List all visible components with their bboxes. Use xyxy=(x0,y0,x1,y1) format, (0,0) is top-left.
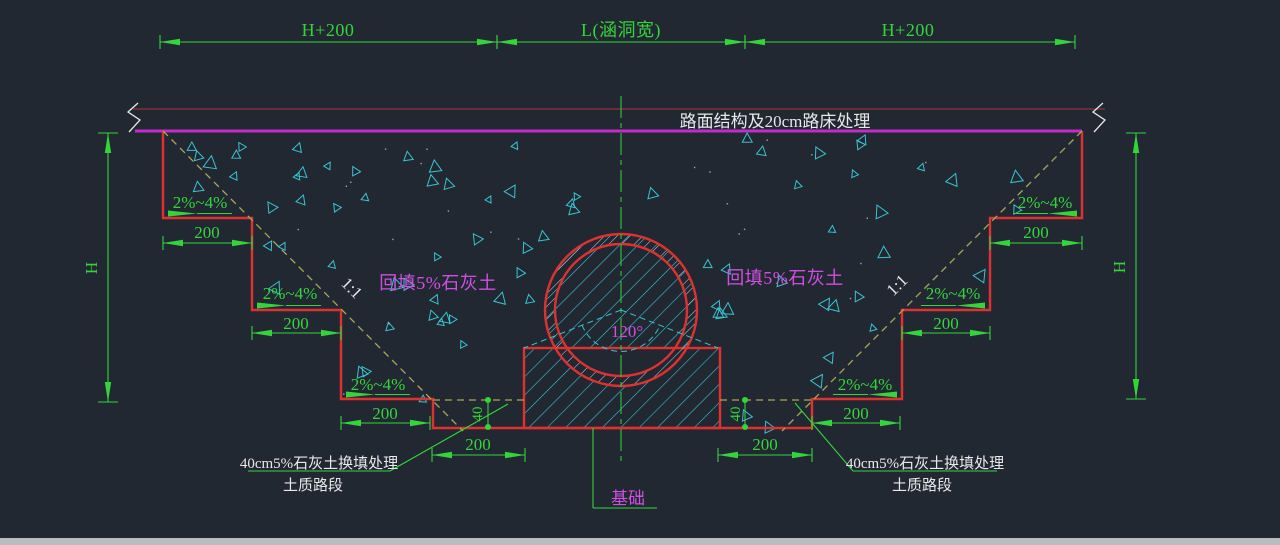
speck xyxy=(426,149,427,150)
dimension-arrow xyxy=(410,420,430,426)
dim-200-bottom-left: 200 xyxy=(465,435,491,454)
hatch-triangle-icon xyxy=(645,186,658,199)
hatch-triangle-icon xyxy=(819,295,835,311)
hatch-triangle-icon xyxy=(757,145,768,155)
speck xyxy=(850,298,851,299)
hatch-triangle-icon xyxy=(192,149,204,160)
angle-label: 120° xyxy=(611,322,643,341)
hatch-triangle-icon xyxy=(1009,169,1023,182)
hatch-triangle-icon xyxy=(973,266,990,283)
hatch-triangle-icon xyxy=(330,201,341,212)
dimension-arrow xyxy=(718,452,738,458)
hatch-triangle-icon xyxy=(361,193,370,201)
dim-200-right-1: 200 xyxy=(1023,223,1049,242)
dim-label-h-right: H xyxy=(1110,261,1129,273)
speck xyxy=(709,171,710,172)
dimension-arrow xyxy=(497,39,517,45)
dim-label-h200-right: H+200 xyxy=(882,20,935,40)
speck xyxy=(420,163,421,164)
hatch-triangle-icon xyxy=(742,133,752,142)
dimension-arrow xyxy=(105,133,111,153)
replace-note-left-line2: 土质路段 xyxy=(283,477,343,494)
hatch-triangle-icon xyxy=(187,142,196,150)
hatch-triangle-icon xyxy=(425,173,438,186)
hatch-triangle-icon xyxy=(458,339,467,348)
dimension-arrow xyxy=(160,39,180,45)
hatch-triangle-icon xyxy=(504,182,520,198)
hatch-triangle-icon xyxy=(828,225,836,232)
hatch-triangle-icon xyxy=(519,240,533,253)
slope-pct-left-1: 2%~4% xyxy=(173,193,228,212)
slope-arrow-icon xyxy=(257,303,286,309)
slope-pct-left-3: 2%~4% xyxy=(351,375,406,394)
hatch-triangle-icon xyxy=(793,180,802,189)
speck xyxy=(867,218,868,219)
break-mark-right-icon xyxy=(1093,103,1105,132)
dim-40-label-left: 40 xyxy=(470,407,486,422)
dimension-arrow xyxy=(745,39,765,45)
dim-label-h-left: H xyxy=(82,262,101,274)
speck xyxy=(925,162,926,163)
dimension-arrow xyxy=(505,452,525,458)
hatch-triangle-icon xyxy=(230,170,240,180)
foundation-label: 基础 xyxy=(611,489,645,508)
dimension-arrow xyxy=(341,420,361,426)
dimension-arrow xyxy=(812,420,832,426)
dimension-arrow xyxy=(792,452,812,458)
hatch-triangle-icon xyxy=(328,260,337,268)
speck xyxy=(388,323,389,324)
speck xyxy=(346,186,347,187)
dimension-arrow xyxy=(163,240,183,246)
hatch-triangle-icon xyxy=(868,323,877,331)
replace-note-right-line2: 土质路段 xyxy=(892,477,952,494)
dimension-arrow xyxy=(477,39,497,45)
backfill-label-right: 回填5%石灰土 xyxy=(726,268,844,288)
dim-200-bottom-right: 200 xyxy=(752,435,778,454)
dim-40-label-right: 40 xyxy=(728,407,744,422)
hatch-triangle-icon xyxy=(511,140,520,149)
hatch-triangle-icon xyxy=(384,321,394,331)
speck xyxy=(298,229,299,230)
speck xyxy=(767,139,768,140)
hatch-triangle-icon xyxy=(263,199,278,213)
slope-ratio-left: 1:1 xyxy=(337,274,366,303)
dimension-arrow xyxy=(1133,379,1139,399)
speck xyxy=(727,203,728,204)
dim-200-right-3: 200 xyxy=(843,404,869,423)
dimension-arrow xyxy=(321,330,341,336)
hatch-triangle-icon xyxy=(851,289,864,302)
hatch-triangle-icon xyxy=(871,202,888,219)
hatch-triangle-icon xyxy=(324,160,334,169)
dimension-arrow xyxy=(990,240,1010,246)
dimension-arrow xyxy=(1062,240,1082,246)
slope-ratio-right: 1:1 xyxy=(883,271,912,300)
dimension-arrow xyxy=(252,330,272,336)
speck xyxy=(518,238,519,239)
hatch-triangle-icon xyxy=(917,162,926,170)
hatch-triangle-icon xyxy=(430,293,442,304)
speck xyxy=(350,182,351,183)
dimension-arrow xyxy=(725,39,745,45)
hatch-triangle-icon xyxy=(703,259,712,267)
slope-arrow-icon xyxy=(956,303,985,309)
hatch-triangle-icon xyxy=(441,177,454,190)
hatch-triangle-icon xyxy=(293,171,302,180)
speck xyxy=(385,148,386,149)
road-structure-note: 路面结构及20cm路床处理 xyxy=(680,112,871,131)
hatch-triangle-icon xyxy=(296,166,308,178)
speck xyxy=(860,263,861,264)
hatch-triangle-icon xyxy=(513,265,526,277)
hatch-triangle-icon xyxy=(192,181,204,192)
hatch-triangle-icon xyxy=(203,155,218,169)
slope-pct-left-2: 2%~4% xyxy=(263,284,318,303)
culvert-cross-section-drawing: H+200 L(涵洞宽) H+200 路面结构及20cm路床处理 H H 2%~… xyxy=(0,0,1280,545)
replace-note-right-line1: 40cm5%石灰土换填处理 xyxy=(846,455,1004,472)
dimension-arrow xyxy=(880,420,900,426)
hatch-triangle-icon xyxy=(428,159,442,172)
break-mark-left-icon xyxy=(128,103,140,132)
dim-200-left-2: 200 xyxy=(283,314,309,333)
hatch-triangle-icon xyxy=(296,193,308,204)
speck xyxy=(448,210,449,211)
hatch-triangle-icon xyxy=(811,371,828,388)
dimension-arrow xyxy=(105,382,111,402)
speck xyxy=(811,154,812,155)
hatch-triangle-icon xyxy=(878,246,891,258)
hatch-triangle-icon xyxy=(761,419,776,433)
dimension-arrow xyxy=(1133,133,1139,153)
dimension-arrow xyxy=(232,240,252,246)
hatch-triangle-icon xyxy=(811,144,826,159)
hatch-triangle-icon xyxy=(849,169,858,178)
hatch-triangle-icon xyxy=(823,349,837,363)
hatch-triangle-icon xyxy=(828,298,842,311)
hatch-triangle-icon xyxy=(426,309,438,321)
hatch-triangle-icon xyxy=(431,251,441,261)
hatch-triangle-icon xyxy=(469,231,483,245)
hatch-triangle-icon xyxy=(537,230,549,241)
dim-label-culvert-width: L(涵洞宽) xyxy=(581,20,661,41)
dim-40-left xyxy=(486,398,491,430)
speck xyxy=(490,231,491,232)
replace-note-left-line1: 40cm5%石灰土换填处理 xyxy=(240,455,398,472)
slope-pct-right-2: 2%~4% xyxy=(926,284,981,303)
speck xyxy=(392,239,393,240)
dim-200-left-3: 200 xyxy=(372,404,398,423)
dim-200-left-1: 200 xyxy=(194,223,220,242)
dimension-arrow xyxy=(902,330,922,336)
speck xyxy=(744,229,745,230)
hatch-triangle-icon xyxy=(235,140,246,151)
hatch-triangle-icon xyxy=(292,141,304,152)
dimension-arrow xyxy=(1055,39,1075,45)
speck xyxy=(343,393,344,394)
dimension-arrow xyxy=(432,452,452,458)
speck xyxy=(694,167,695,168)
horizontal-scrollbar[interactable] xyxy=(0,538,1280,545)
dim-label-h200-left: H+200 xyxy=(302,20,355,40)
hatch-triangle-icon xyxy=(524,294,534,304)
hatch-triangle-icon xyxy=(485,194,494,203)
hatch-triangle-icon xyxy=(278,241,288,251)
slope-pct-right-1: 2%~4% xyxy=(1018,193,1073,212)
hatch-triangle-icon xyxy=(402,151,413,161)
speck xyxy=(739,233,740,234)
hatch-triangle-icon xyxy=(263,239,275,251)
hatch-triangle-icon xyxy=(349,164,361,175)
slope-pct-right-3: 2%~4% xyxy=(838,375,893,394)
hatch-triangle-icon xyxy=(567,202,580,215)
hatch-triangle-icon xyxy=(946,171,962,186)
backfill-label-left: 回填5%石灰土 xyxy=(379,273,497,293)
dim-200-right-2: 200 xyxy=(933,314,959,333)
dimension-arrow xyxy=(970,330,990,336)
